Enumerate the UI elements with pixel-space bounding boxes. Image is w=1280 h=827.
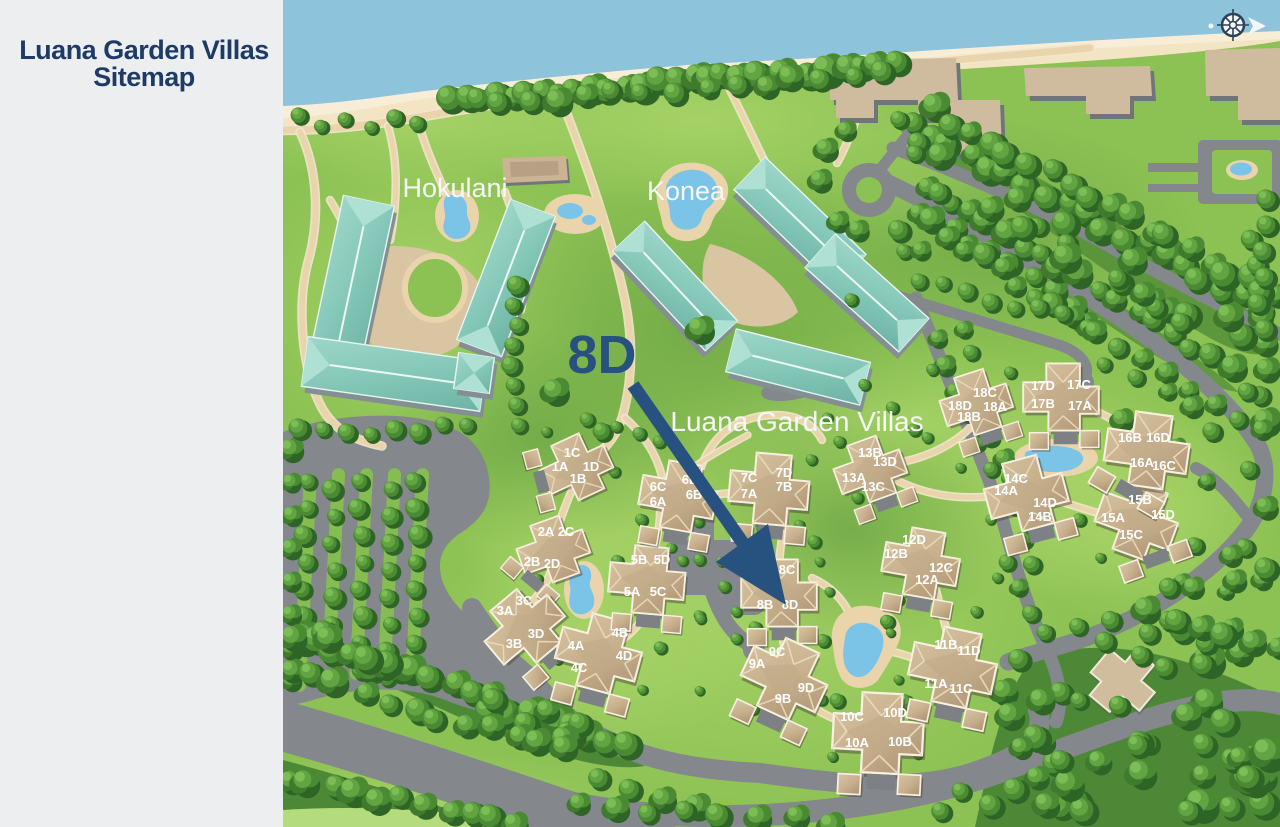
svg-text:10D: 10D — [883, 705, 907, 720]
svg-text:Luana Garden Villas: Luana Garden Villas — [670, 406, 923, 437]
svg-text:18A: 18A — [983, 399, 1007, 414]
svg-text:15C: 15C — [1119, 527, 1143, 542]
svg-text:9C: 9C — [769, 644, 786, 659]
svg-text:13D: 13D — [873, 454, 897, 469]
svg-text:12B: 12B — [884, 546, 908, 561]
svg-text:7A: 7A — [741, 486, 758, 501]
svg-text:10B: 10B — [888, 734, 912, 749]
svg-text:Hokulani: Hokulani — [402, 173, 507, 203]
svg-text:13C: 13C — [861, 479, 885, 494]
svg-text:12A: 12A — [915, 572, 939, 587]
svg-text:2A: 2A — [538, 524, 555, 539]
svg-text:11A: 11A — [924, 676, 948, 691]
svg-text:17D: 17D — [1031, 378, 1055, 393]
svg-text:3D: 3D — [528, 626, 545, 641]
svg-text:9D: 9D — [798, 680, 815, 695]
svg-text:1C: 1C — [564, 445, 581, 460]
svg-text:11B: 11B — [934, 637, 957, 652]
svg-text:1A: 1A — [552, 459, 569, 474]
svg-text:17B: 17B — [1031, 396, 1055, 411]
svg-text:5C: 5C — [650, 584, 667, 599]
svg-text:16C: 16C — [1152, 458, 1176, 473]
svg-text:17C: 17C — [1067, 377, 1091, 392]
svg-text:3A: 3A — [497, 603, 514, 618]
svg-text:4D: 4D — [616, 648, 633, 663]
svg-text:Luana Garden Villas: Luana Garden Villas — [19, 35, 269, 65]
svg-text:Sitemap: Sitemap — [93, 62, 195, 92]
svg-text:14B: 14B — [1028, 509, 1052, 524]
svg-text:7D: 7D — [776, 465, 793, 480]
svg-text:15D: 15D — [1151, 507, 1175, 522]
svg-text:16A: 16A — [1130, 455, 1154, 470]
svg-text:10A: 10A — [845, 735, 869, 750]
svg-text:14D: 14D — [1033, 495, 1057, 510]
svg-text:9B: 9B — [775, 691, 792, 706]
svg-text:2D: 2D — [544, 556, 561, 571]
svg-text:1B: 1B — [570, 471, 587, 486]
svg-text:16D: 16D — [1146, 430, 1170, 445]
svg-text:18C: 18C — [973, 385, 997, 400]
svg-text:2B: 2B — [524, 554, 541, 569]
svg-text:2C: 2C — [558, 524, 575, 539]
svg-text:4A: 4A — [568, 638, 585, 653]
svg-text:15A: 15A — [1101, 510, 1125, 525]
svg-text:3B: 3B — [506, 636, 523, 651]
svg-text:8D: 8D — [567, 325, 636, 385]
svg-text:11C: 11C — [949, 681, 973, 696]
svg-text:9A: 9A — [749, 656, 766, 671]
svg-text:3C: 3C — [516, 593, 533, 608]
svg-text:7B: 7B — [776, 479, 793, 494]
svg-text:15B: 15B — [1128, 492, 1152, 507]
svg-text:17A: 17A — [1068, 398, 1092, 413]
svg-text:16B: 16B — [1118, 430, 1142, 445]
svg-text:5D: 5D — [654, 552, 671, 567]
svg-text:5B: 5B — [631, 552, 648, 567]
svg-text:7C: 7C — [741, 470, 758, 485]
svg-text:5A: 5A — [624, 584, 641, 599]
svg-text:14A: 14A — [994, 483, 1018, 498]
svg-text:Konea: Konea — [647, 176, 726, 206]
svg-text:10C: 10C — [840, 709, 864, 724]
svg-text:6C: 6C — [650, 479, 667, 494]
svg-text:6A: 6A — [650, 494, 667, 509]
svg-text:4B: 4B — [612, 625, 629, 640]
svg-text:4C: 4C — [571, 660, 588, 675]
svg-text:12D: 12D — [902, 532, 926, 547]
svg-text:8B: 8B — [757, 597, 774, 612]
svg-text:18B: 18B — [957, 409, 981, 424]
svg-text:8C: 8C — [779, 562, 796, 577]
svg-text:11D: 11D — [957, 643, 980, 658]
